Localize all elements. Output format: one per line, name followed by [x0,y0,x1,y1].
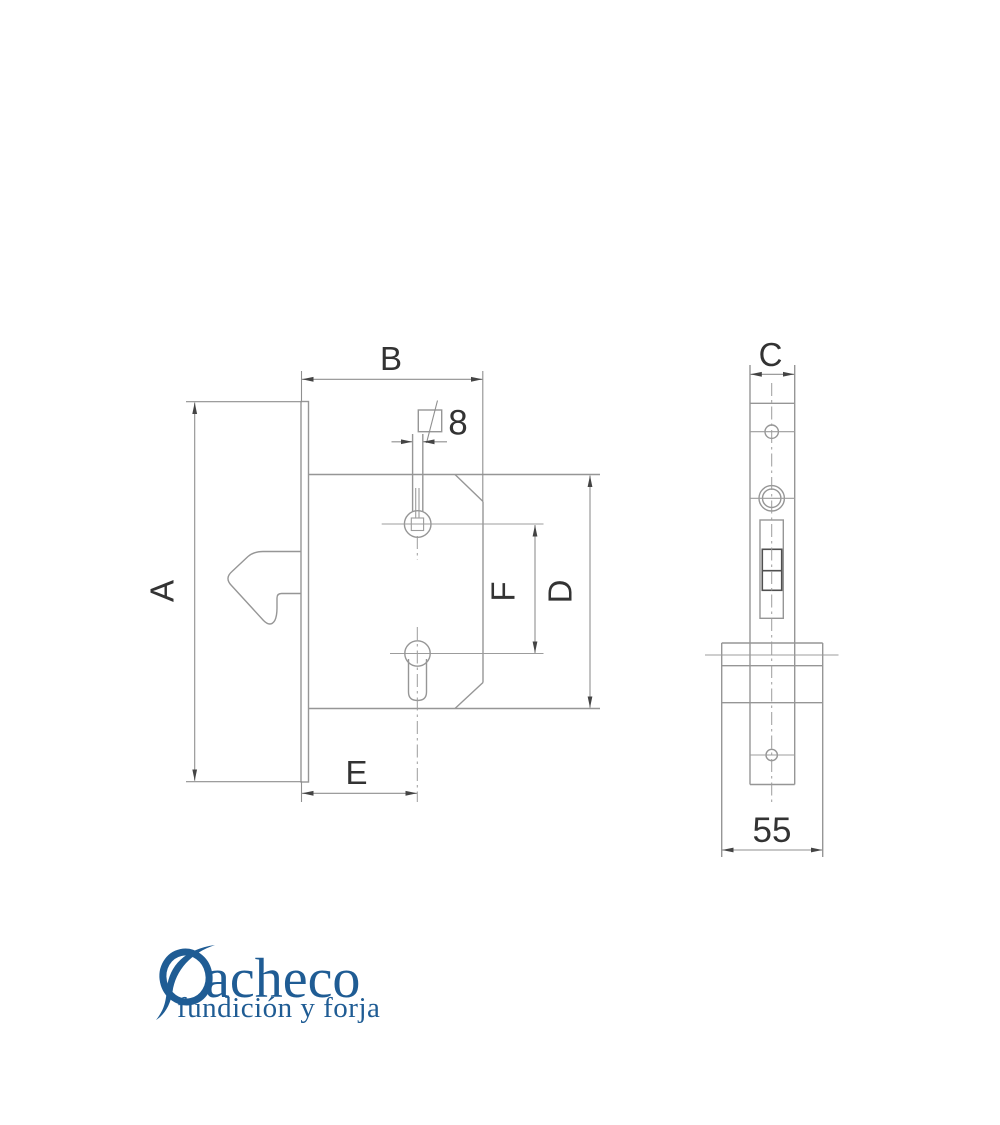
logo-tagline: fundición y forja [177,992,380,1024]
dim-55-label: 55 [753,811,792,850]
technical-drawing-page: A B 8 D F E [0,0,1000,1125]
hook-bolt [228,552,301,625]
faceplate [301,402,309,783]
body-chamfer-top [455,475,483,502]
lock-dimension-drawing: A B 8 D F E [0,0,1000,1125]
side-view [705,365,839,857]
dim-F-label: F [485,581,522,601]
dim-C-label: C [759,336,783,373]
dim-A-label: A [144,580,181,602]
dim-D-label: D [542,580,579,604]
dim-8-label: 8 [448,404,467,443]
front-view-dimensions: A B 8 D F E [144,340,591,802]
logo: acheco fundición y forja [156,945,380,1024]
body-chamfer-bottom [455,683,483,709]
square-leader-line [427,401,438,444]
dim-B-label: B [380,340,402,377]
dim-E-label: E [345,754,367,791]
